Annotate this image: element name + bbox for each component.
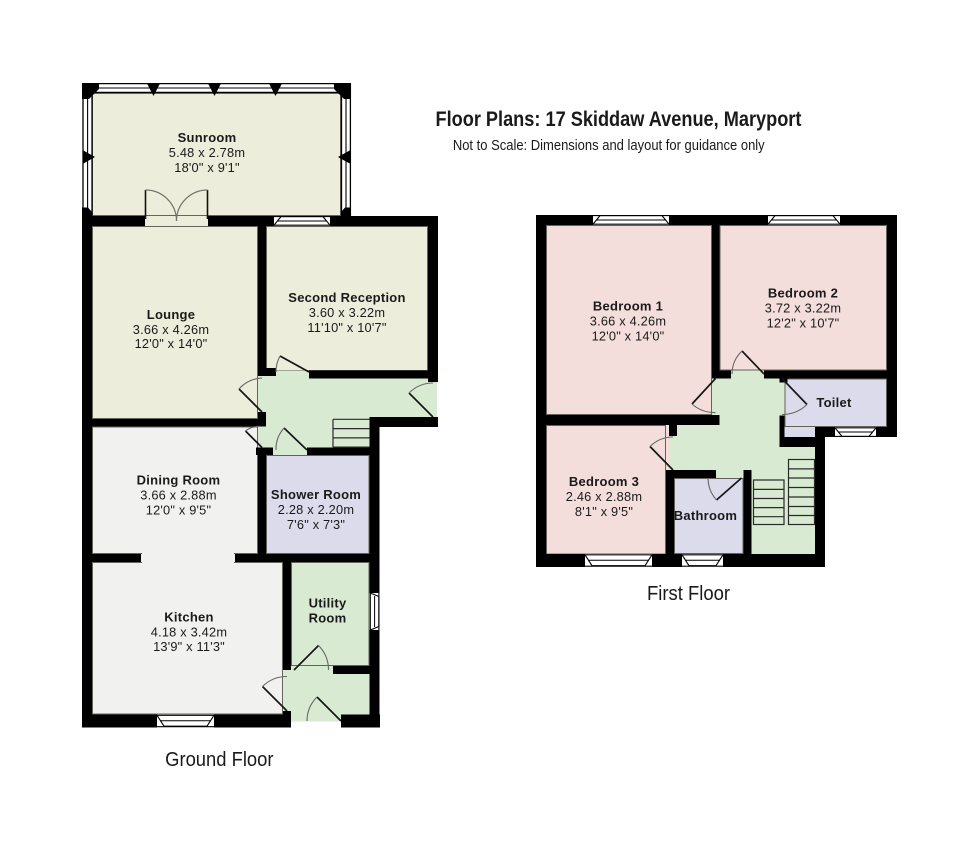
svg-text:Kitchen: Kitchen [164,610,213,625]
svg-text:3.66 x 4.26m: 3.66 x 4.26m [590,314,666,329]
svg-text:18'0" x 9'1": 18'0" x 9'1" [174,160,239,175]
svg-text:Dining Room: Dining Room [137,473,221,488]
svg-text:Lounge: Lounge [147,307,195,322]
svg-text:Sunroom: Sunroom [178,130,237,145]
svg-text:Bedroom 1: Bedroom 1 [593,299,663,314]
svg-text:12'0" x 14'0": 12'0" x 14'0" [135,336,208,351]
svg-text:Bedroom 3: Bedroom 3 [569,474,639,489]
svg-text:3.60 x 3.22m: 3.60 x 3.22m [309,305,385,320]
svg-text:11'10" x 10'7": 11'10" x 10'7" [307,320,386,335]
svg-text:13'9" x 11'3": 13'9" x 11'3" [153,639,225,654]
svg-text:12'0" x 14'0": 12'0" x 14'0" [592,329,665,344]
svg-text:3.66 x 2.88m: 3.66 x 2.88m [140,488,216,503]
svg-text:Ground Floor: Ground Floor [165,749,274,771]
svg-text:First Floor: First Floor [647,582,730,605]
svg-text:8'1" x 9'5": 8'1" x 9'5" [575,504,633,519]
svg-text:Bedroom 2: Bedroom 2 [768,286,838,301]
svg-text:5.48 x 2.78m: 5.48 x 2.78m [169,145,245,160]
svg-text:12'0" x 9'5": 12'0" x 9'5" [146,503,211,518]
svg-text:Floor Plans: 17 Skiddaw Avenue: Floor Plans: 17 Skiddaw Avenue, Maryport [436,108,802,132]
svg-text:Second Reception: Second Reception [288,290,405,305]
svg-text:Room: Room [309,611,347,626]
svg-text:2.46 x 2.88m: 2.46 x 2.88m [566,489,642,504]
svg-text:2.28 x 2.20m: 2.28 x 2.20m [278,502,354,517]
svg-text:Bathroom: Bathroom [674,508,737,523]
svg-text:12'2" x 10'7": 12'2" x 10'7" [767,316,840,331]
svg-text:4.18 x 3.42m: 4.18 x 3.42m [151,625,227,640]
svg-text:3.66 x 4.26m: 3.66 x 4.26m [133,322,209,337]
svg-text:Shower Room: Shower Room [271,487,361,502]
svg-text:Utility: Utility [309,596,347,611]
svg-text:Toilet: Toilet [816,395,852,410]
svg-text:7'6" x 7'3": 7'6" x 7'3" [287,517,345,532]
svg-text:3.72 x 3.22m: 3.72 x 3.22m [765,301,841,316]
svg-text:Not to Scale: Dimensions and l: Not to Scale: Dimensions and layout for … [453,136,765,153]
